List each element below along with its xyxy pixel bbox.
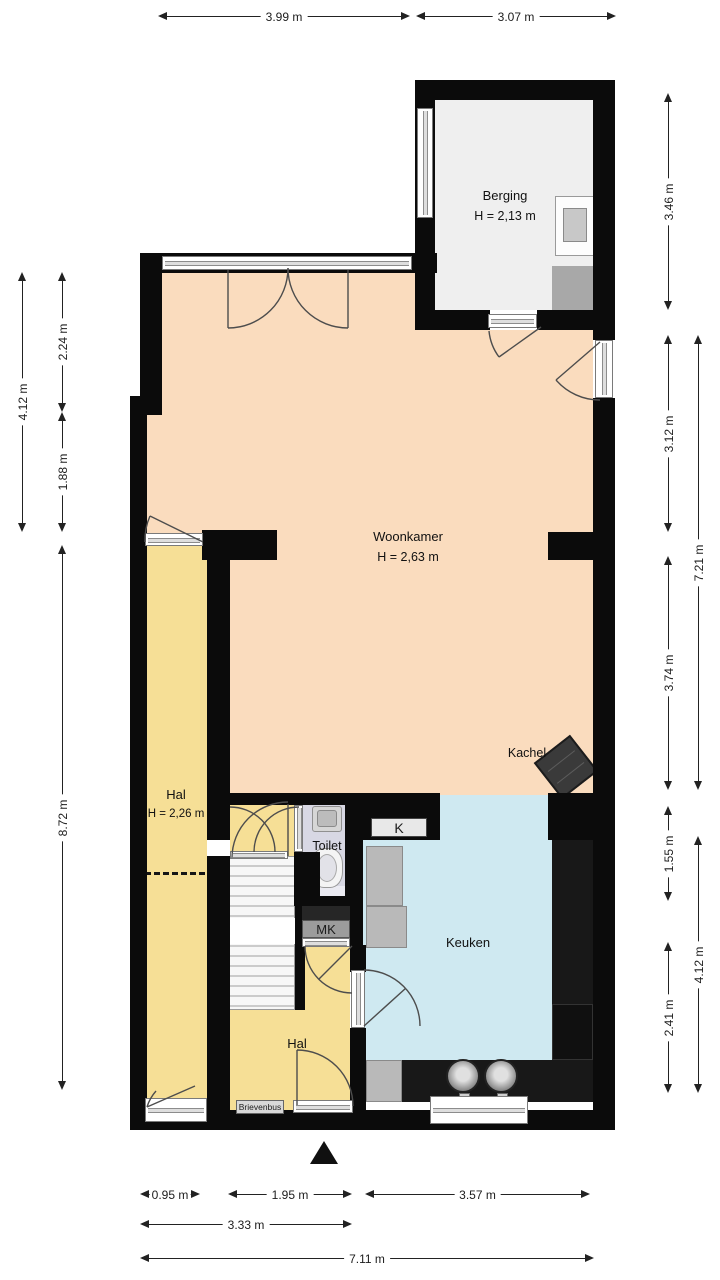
dimension-left-3: 8.72 m (56, 545, 69, 1090)
woonkamer-label: Woonkamer (328, 529, 488, 545)
toilet-label: Toilet (297, 838, 357, 854)
north-arrow-icon (310, 1141, 338, 1164)
dimension-top-2: 3.07 m (416, 10, 616, 23)
dimension-left-2: 1.88 m (56, 412, 69, 532)
hal-label: Hal (146, 787, 206, 803)
dimension-bottom-5: 7.11 m (140, 1252, 594, 1265)
dimension-right-outer-1: 7.21 m (692, 335, 705, 790)
keuken-label: Keuken (398, 935, 538, 951)
floorplan-canvas: K MK Brievenbus Berging H = 2,13 m Woonk… (0, 0, 720, 1280)
kachel-label: Kachel (477, 745, 577, 761)
dimension-bottom-2: 1.95 m (228, 1188, 352, 1201)
dimension-left-outer: 4.12 m (16, 272, 29, 532)
dimension-bottom-3: 3.57 m (365, 1188, 590, 1201)
dimension-bottom-4: 3.33 m (140, 1218, 352, 1231)
dimension-right-5: 2.41 m (662, 942, 675, 1093)
dimension-right-2: 3.12 m (662, 335, 675, 532)
hal-height-label: H = 2,26 m (136, 806, 216, 822)
hal-entree-label: Hal (262, 1036, 332, 1052)
woonkamer-height-label: H = 2,63 m (328, 549, 488, 565)
dimension-right-4: 1.55 m (662, 806, 675, 901)
dimension-top-1: 3.99 m (158, 10, 410, 23)
dimension-right-outer-2: 4.12 m (692, 836, 705, 1093)
dimension-bottom-1: 0.95 m (140, 1188, 200, 1201)
dimension-right-1: 3.46 m (662, 93, 675, 310)
berging-height-label: H = 2,13 m (425, 208, 585, 224)
door-swing-arcs (0, 0, 720, 1280)
dimension-right-3: 3.74 m (662, 556, 675, 790)
dimension-left-1: 2.24 m (56, 272, 69, 412)
berging-label: Berging (425, 188, 585, 204)
